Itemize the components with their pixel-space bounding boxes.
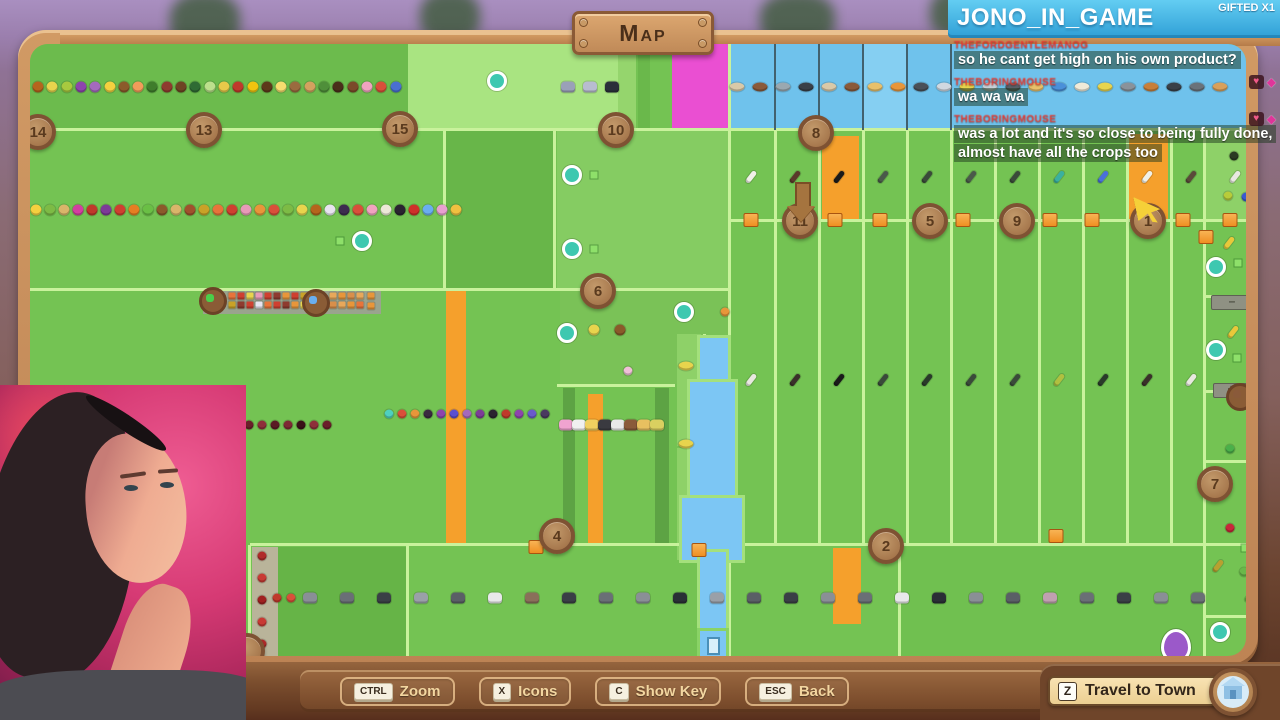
field-plot [557, 131, 729, 289]
fish-row-icon [730, 83, 745, 92]
crate-icon [1199, 230, 1214, 244]
chat-text: was a lot and it's so close to being ful… [954, 125, 1276, 162]
edge-items-icon [1226, 524, 1235, 533]
fruit-row-icon [204, 82, 215, 93]
fruit-row-icon [45, 205, 56, 216]
shelf-fruit-icon [330, 302, 337, 309]
fruit-row-icon [395, 205, 406, 216]
berry-row-icon [515, 410, 524, 419]
toolbar: CTRLZoomXIconsCShow KeyESCBack [300, 670, 1048, 712]
fruit-row-icon [143, 205, 154, 216]
livestock-row-icon [858, 593, 872, 604]
field-plot [833, 548, 861, 624]
fruit-row-icon [104, 82, 115, 93]
fruit-row-icon [190, 82, 201, 93]
crop-glyph-row-icon [965, 373, 978, 387]
keycap: C [609, 683, 628, 700]
fruit-row-icon [339, 205, 350, 216]
shelf-fruit-icon [339, 302, 346, 309]
grid-line [557, 384, 675, 387]
fruit-row-icon [451, 205, 462, 216]
fruit-row-icon [361, 82, 372, 93]
fruit-row-icon [59, 205, 70, 216]
rivet-icon [579, 39, 588, 48]
livestock-row-icon [1154, 593, 1168, 604]
edge-items-icon [1240, 568, 1247, 577]
sprinkler-icon [591, 172, 598, 179]
livestock-row-icon [710, 593, 724, 604]
button-label: Back [799, 683, 835, 700]
livestock-row-icon [747, 593, 761, 604]
livestock-row-icon [451, 593, 465, 604]
field-plot [672, 44, 728, 130]
crate-icon [744, 213, 759, 227]
strawberry-col-icon [258, 596, 267, 605]
fruit-row-icon [171, 205, 182, 216]
gem-icon: ◆ [1267, 75, 1276, 89]
crate-icon [1085, 213, 1100, 227]
berry-row-icon [489, 410, 498, 419]
shelf-fruit-icon [292, 302, 299, 309]
berry-row-icon [424, 410, 433, 419]
fruit-row-icon [367, 205, 378, 216]
grid-line [862, 131, 865, 543]
fish-row-icon [822, 83, 837, 92]
fruit-row-icon [325, 205, 336, 216]
crop-glyph-row-icon [1141, 373, 1154, 387]
crate-icon [1049, 529, 1064, 543]
chat-badges: ♥◆ [1249, 112, 1276, 126]
fruit-row-icon [247, 82, 258, 93]
back-button[interactable]: ESCBack [745, 677, 848, 706]
crop-glyph-row-icon [1053, 373, 1066, 387]
fruit-row-icon [319, 82, 330, 93]
fruit-row-icon [233, 82, 244, 93]
grid-line [1170, 131, 1173, 543]
berry-row-icon [502, 410, 511, 419]
berry-pair-icon [287, 594, 296, 603]
fruit-row-icon [161, 82, 172, 93]
bird-row-icon [583, 82, 597, 93]
duck-row-icon [650, 420, 664, 431]
livestock-row-icon [562, 593, 576, 604]
pond-divider [862, 44, 864, 130]
edge-items-icon [1242, 193, 1247, 202]
map-number-marker: 8 [798, 115, 834, 151]
keycap: CTRL [354, 683, 393, 700]
fruit-row-icon [409, 205, 420, 216]
fruit-row-icon [276, 82, 287, 93]
shelf-fruit-icon [357, 302, 364, 309]
strawberry-col-icon [258, 574, 267, 583]
streamer-shirt [0, 670, 246, 720]
fruit-row-icon [390, 82, 401, 93]
fruit-row-icon [118, 82, 129, 93]
livestock-row-icon [932, 593, 946, 604]
tracked-item-ring-icon [674, 302, 694, 322]
fruit-row-icon [47, 82, 58, 93]
travel-to-town-button[interactable]: Z Travel to Town [1048, 676, 1230, 706]
chat-message: THEBORINGMOUSEwas a lot and it's so clos… [954, 114, 1276, 163]
grid-line [994, 131, 997, 543]
shelf-fruit-icon [238, 293, 245, 300]
fish-row-icon [753, 83, 768, 92]
fruit-row-icon [90, 82, 101, 93]
fruit-row-icon [115, 205, 126, 216]
icons-button[interactable]: XIcons [479, 677, 572, 706]
gem-icon: ◆ [1267, 112, 1276, 126]
chat-username: THEBORINGMOUSE [954, 114, 1276, 125]
sprinkler-icon [1234, 355, 1241, 362]
chat-badges: ♥◆ [1249, 75, 1276, 89]
field-sign: – [1211, 295, 1246, 310]
livestock-row-icon [488, 593, 502, 604]
shelf-fruit-icon [274, 293, 281, 300]
zoom-button[interactable]: CTRLZoom [340, 677, 455, 706]
machine-icon [199, 287, 227, 315]
fruit-row-icon [129, 205, 140, 216]
fruit-row-icon [347, 82, 358, 93]
fruit-row-icon [376, 82, 387, 93]
chat-overlay: JONO_IN_GAME GIFTED X1 THEFORDGENTLEMANO… [948, 0, 1280, 175]
crop-glyph-row-icon [745, 170, 758, 184]
eye [124, 485, 138, 491]
shelf-fruit-icon [265, 302, 272, 309]
sprinkler-icon [1235, 260, 1242, 267]
shelf-fruit-icon [348, 302, 355, 309]
shelf-fruit-icon [339, 293, 346, 300]
fish-row-icon [891, 83, 906, 92]
edge-items-icon [1224, 192, 1233, 201]
berry-row-icon [385, 410, 394, 419]
chat-header: JONO_IN_GAME GIFTED X1 [948, 0, 1280, 38]
orchard-row-icon [589, 325, 600, 336]
fruit-row-icon [213, 205, 224, 216]
fish-row-icon [799, 83, 814, 92]
berry-row-icon [450, 410, 459, 419]
grid-line [1205, 460, 1246, 463]
map-number-marker: 15 [382, 111, 418, 147]
duck-row-icon [637, 420, 651, 431]
grid-line [553, 131, 556, 289]
livestock-row-icon [1117, 593, 1131, 604]
edge-items-icon [1244, 589, 1246, 603]
fruit-row-icon [87, 205, 98, 216]
heart-icon: ♥ [1249, 75, 1264, 89]
duck-row-icon [559, 420, 573, 431]
fruit-row-icon [185, 205, 196, 216]
bird-row-icon [561, 82, 575, 93]
berry-row-icon [323, 421, 332, 430]
berry-row-icon [476, 410, 485, 419]
shelf-fruit-icon [283, 302, 290, 309]
fruit-row-icon [423, 205, 434, 216]
livestock-row-icon [821, 593, 835, 604]
grid-line [250, 543, 1246, 546]
crop-glyph-row-icon [1097, 373, 1110, 387]
grid-line [818, 131, 821, 543]
sprinkler-icon [337, 238, 344, 245]
fruit-row-icon [31, 205, 42, 216]
livestock-row-icon [303, 593, 317, 604]
crate-icon [692, 543, 707, 557]
field-plot [588, 394, 603, 544]
livestock-row-icon [969, 593, 983, 604]
shelf-fruit-icon [238, 302, 245, 309]
keycap: X [493, 683, 512, 700]
livestock-row-icon [1191, 593, 1205, 604]
strawberry-col-icon [258, 618, 267, 627]
edge-items-icon [1227, 325, 1240, 339]
fruit-row-icon [75, 82, 86, 93]
fish-row-icon [845, 83, 860, 92]
tracked-item-ring-icon [562, 165, 582, 185]
livestock-row-icon [414, 593, 428, 604]
berry-row-icon [398, 410, 407, 419]
grid-line [406, 545, 409, 656]
duck-row-icon [572, 420, 586, 431]
fruit-row-icon [241, 205, 252, 216]
duck-row-icon [611, 420, 625, 431]
shelf-fruit-icon [283, 293, 290, 300]
field-plot [638, 44, 650, 130]
eye [160, 482, 174, 488]
livestock-row-icon [895, 593, 909, 604]
field-plot [655, 388, 669, 544]
fruit-row-icon [290, 82, 301, 93]
duck-row-icon [598, 420, 612, 431]
shelf-fruit-icon [247, 293, 254, 300]
water-gate [697, 628, 729, 656]
fruit-row-icon [227, 205, 238, 216]
fruit-row-icon [304, 82, 315, 93]
fruit-row-icon [311, 205, 322, 216]
crate-icon [873, 213, 888, 227]
chat-channel-name: JONO_IN_GAME [957, 4, 1154, 32]
edge-items-icon [1226, 445, 1235, 454]
travel-keycap: Z [1058, 682, 1077, 701]
berry-row-icon [310, 421, 319, 430]
berry-row-icon [463, 410, 472, 419]
machine-icon [302, 289, 330, 317]
shelf-fruit-icon [265, 293, 272, 300]
travel-label: Travel to Town [1085, 682, 1196, 700]
chat-username: THEFORDGENTLEMANOG [954, 40, 1276, 51]
map-number-marker: 6 [580, 273, 616, 309]
edge-items-icon [1223, 236, 1236, 250]
field-plot [445, 131, 555, 289]
livestock-row-icon [525, 593, 539, 604]
edge-items-icon [1212, 559, 1225, 573]
chat-username: THEBORINGMOUSE [954, 77, 1276, 88]
tracked-item-ring-icon [1206, 257, 1226, 277]
livestock-row-icon [377, 593, 391, 604]
tracked-item-ring-icon [562, 239, 582, 259]
map-number-marker: 7 [1197, 466, 1233, 502]
grid-line [30, 288, 730, 291]
fruit-row-icon [353, 205, 364, 216]
keycap: ESC [759, 683, 792, 700]
fruit-row-icon [101, 205, 112, 216]
fish-row-icon [776, 83, 791, 92]
machine-icon [1226, 383, 1246, 411]
crop-glyph-row-icon [877, 373, 890, 387]
chat-messages: THEFORDGENTLEMANOGso he cant get high on… [954, 40, 1276, 171]
berry-row-icon [411, 410, 420, 419]
crate-icon [828, 213, 843, 227]
map-number-marker: 10 [598, 112, 634, 148]
livestock-row-icon [1080, 593, 1094, 604]
map-title: Map [619, 20, 666, 47]
pond-divider [906, 44, 908, 130]
crop-glyph-row-icon [1009, 373, 1022, 387]
bird-row-icon [605, 82, 619, 93]
fruit-row-icon [147, 82, 158, 93]
map-title-banner: Map [572, 11, 714, 55]
crop-glyph-row-icon [921, 373, 934, 387]
livestock-row-icon [1043, 593, 1057, 604]
livestock-row-icon [784, 593, 798, 604]
chat-text: so he cant get high on his own product? [954, 51, 1241, 69]
grid-line [1038, 131, 1041, 543]
fruit-row-icon [73, 205, 84, 216]
grid-line [774, 131, 777, 543]
tracked-item-ring-icon [1210, 622, 1230, 642]
shelf-fruit-icon [274, 302, 281, 309]
fruit-row-icon [176, 82, 187, 93]
fruit-row-icon [269, 205, 280, 216]
fruit-row-icon [283, 205, 294, 216]
tracked-item-ring-icon [487, 71, 507, 91]
sprinkler-icon [1242, 545, 1247, 552]
heart-icon: ♥ [1249, 112, 1264, 126]
town-house-icon[interactable] [1209, 668, 1257, 716]
shelf-fruit-icon [256, 293, 263, 300]
shelf-fruit-icon [330, 293, 337, 300]
tracked-item-ring-icon [557, 323, 577, 343]
berry-row-icon [437, 410, 446, 419]
crop-glyph-row-icon [745, 373, 758, 387]
button-label: Icons [518, 683, 557, 700]
pond-fish-icon [679, 362, 694, 371]
chat-text: wa wa wa [954, 88, 1028, 106]
berry-row-icon [297, 421, 306, 430]
map-number-marker: 13 [186, 112, 222, 148]
livestock-row-icon [1006, 593, 1020, 604]
show-key-button[interactable]: CShow Key [595, 677, 721, 706]
fish-row-icon [868, 83, 883, 92]
berry-pair-icon [273, 594, 282, 603]
berry-row-icon [271, 421, 280, 430]
grid-line [728, 44, 731, 656]
livestock-row-icon [340, 593, 354, 604]
flower-icon [624, 367, 633, 376]
crate-icon [1043, 213, 1058, 227]
fruit-row-icon [61, 82, 72, 93]
fruit-row-icon [33, 82, 44, 93]
sack-pair-icon [368, 293, 375, 300]
shelf-fruit-icon [247, 302, 254, 309]
berry-row-icon [541, 410, 550, 419]
grid-line [1082, 131, 1085, 543]
pond-fish-icon [679, 440, 694, 449]
sprinkler-icon [591, 246, 598, 253]
fish-row-icon [914, 83, 929, 92]
webcam-overlay [0, 385, 246, 720]
chat-message: THEFORDGENTLEMANOGso he cant get high on… [954, 40, 1276, 70]
grid-line [906, 131, 909, 543]
grid-line [950, 131, 953, 543]
crate-icon [1176, 213, 1191, 227]
duck-row-icon [585, 420, 599, 431]
orchard-row-icon [615, 325, 626, 336]
fruit-row-icon [333, 82, 344, 93]
fruit-row-icon [255, 205, 266, 216]
fruit-row-icon [437, 205, 448, 216]
pointer-arrow-icon [787, 206, 815, 222]
map-number-marker: 9 [999, 203, 1035, 239]
livestock-row-icon [673, 593, 687, 604]
button-label: Show Key [636, 683, 708, 700]
shelf-fruit-icon [348, 293, 355, 300]
livestock-row-icon [636, 593, 650, 604]
fruit-row-icon [297, 205, 308, 216]
berry-row-icon [258, 421, 267, 430]
fruit-row-icon [218, 82, 229, 93]
map-number-marker: 4 [539, 518, 575, 554]
crop-glyph-row-icon [833, 373, 846, 387]
rivet-icon [579, 18, 588, 27]
livestock-row-icon [599, 593, 613, 604]
crop-glyph-row-icon [789, 373, 802, 387]
rivet-icon [698, 18, 707, 27]
fruit-row-icon [199, 205, 210, 216]
tracked-item-ring-icon [352, 231, 372, 251]
grid-line [1203, 131, 1206, 656]
map-number-marker: 5 [912, 203, 948, 239]
map-number-marker: 2 [868, 528, 904, 564]
river-water [690, 382, 735, 510]
button-label: Zoom [400, 683, 441, 700]
shelf-fruit-icon [229, 302, 236, 309]
chat-message: THEBORINGMOUSEwa wa wa♥◆ [954, 77, 1276, 107]
fruit-row-icon [261, 82, 272, 93]
shelf-fruit-icon [357, 293, 364, 300]
crop-glyph-row-icon [877, 170, 890, 184]
berry-row-icon [528, 410, 537, 419]
berry-row-icon [284, 421, 293, 430]
crop-glyph-row-icon [1185, 373, 1198, 387]
shelf-fruit-icon [256, 302, 263, 309]
crate-icon [1223, 213, 1238, 227]
shelf-fruit-icon [229, 293, 236, 300]
sack-pair-icon [368, 303, 375, 310]
fruit-row-icon [133, 82, 144, 93]
crate-icon [956, 213, 971, 227]
duck-row-icon [624, 420, 638, 431]
grid-line [1126, 131, 1129, 543]
shelf-fruit-icon [292, 293, 299, 300]
fruit-row-icon [157, 205, 168, 216]
gifted-badge: GIFTED X1 [1218, 2, 1275, 14]
fruit-row-icon [381, 205, 392, 216]
edge-items-icon [721, 308, 730, 317]
strawberry-col-icon [258, 552, 267, 561]
crop-glyph-row-icon [921, 170, 934, 184]
grid-line [1205, 615, 1246, 618]
rivet-icon [698, 39, 707, 48]
tracked-item-ring-icon [1206, 340, 1226, 360]
